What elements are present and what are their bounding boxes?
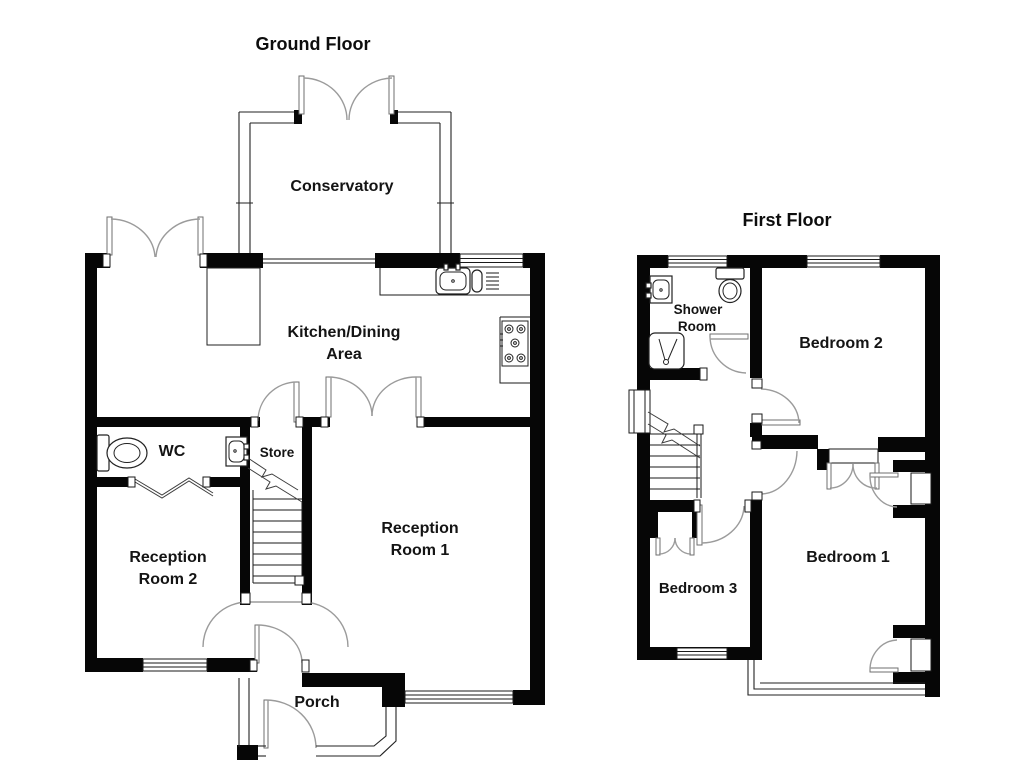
wall-recess-stub — [893, 460, 925, 472]
door-shower-room — [710, 334, 748, 373]
staircase-ground — [248, 458, 304, 585]
porch-glazing — [239, 678, 396, 756]
wall-bedroom2-bedroom1 — [878, 437, 925, 452]
folding-door-reception2 — [135, 478, 213, 498]
opening-conservatory-sill — [263, 259, 375, 263]
stair-break-line — [248, 458, 298, 490]
room-label-shower-line2: Room — [678, 319, 716, 334]
porch-glass — [316, 707, 396, 756]
wall-shower-landing — [637, 368, 707, 380]
window-reception1 — [405, 691, 513, 703]
door-bedroom3 — [697, 505, 744, 545]
room-label-shower-line1: Shower — [674, 302, 724, 317]
ground-floor-windows — [143, 254, 523, 703]
window-kitchen — [460, 254, 523, 267]
french-door-leaf — [389, 76, 394, 114]
wall-bottom-reception2 — [97, 658, 143, 672]
window-shower-room — [668, 256, 727, 267]
wall-left — [85, 253, 97, 672]
room-label-conservatory: Conservatory — [290, 178, 393, 195]
wall-reception2-hall — [240, 487, 250, 605]
wall-bedroom3-bedroom1 — [750, 500, 762, 660]
room-label-kitchen-line1: Kitchen/Dining — [288, 324, 401, 341]
closet-doors-bedroom3 — [656, 538, 694, 555]
conservatory-structure — [236, 76, 454, 253]
room-label-reception2-line2: Room 2 — [139, 571, 198, 588]
closet-cavity — [829, 449, 878, 463]
wall-porch-corner — [382, 673, 405, 707]
staircase-first — [648, 412, 703, 498]
french-door-leaf — [299, 76, 304, 114]
wardrobe-door-top — [870, 473, 898, 507]
newel-post — [694, 425, 703, 434]
shower-basin-icon — [646, 276, 672, 303]
room-label-reception1-line1: Reception — [381, 520, 458, 537]
window-bedroom2 — [807, 256, 880, 267]
room-label-wc: WC — [159, 443, 186, 460]
kitchen-unit-icon — [207, 268, 260, 345]
window-landing — [629, 390, 650, 433]
wall-right — [530, 253, 545, 705]
room-label-bedroom2: Bedroom 2 — [799, 335, 883, 352]
shower-tray-icon — [649, 333, 684, 369]
wall-landing-bedroom2 — [750, 423, 762, 437]
wall-recess-stub — [893, 505, 925, 518]
wall-bottom-hall — [302, 673, 388, 687]
wall-porch-corner — [237, 745, 258, 760]
porch-glass — [316, 707, 386, 746]
drainer-icon — [486, 273, 499, 289]
wardrobe-recess — [911, 639, 931, 671]
french-doors-kitchen — [107, 217, 203, 257]
archway-hall — [203, 602, 348, 647]
door-swing-arc — [304, 78, 347, 120]
wall-kitchen-reception1 — [418, 417, 530, 427]
room-label-kitchen-line2: Area — [326, 346, 362, 363]
wall-left — [637, 433, 650, 660]
room-label-reception1-line2: Room 1 — [391, 542, 450, 559]
room-label-store: Store — [260, 445, 295, 460]
window-reception2 — [143, 659, 207, 671]
wall-top — [727, 255, 807, 268]
room-label-reception2-line1: Reception — [129, 549, 206, 566]
first-floor-jambs — [694, 368, 762, 512]
ground-floor-jambs — [103, 254, 424, 672]
ground-floor-plan: Ground Floor — [85, 34, 545, 760]
wall-recess-stub — [893, 625, 925, 638]
floorplan-drawing: Ground Floor — [0, 0, 1024, 768]
window-bedroom3 — [677, 648, 727, 659]
hob-icon — [500, 321, 528, 366]
ground-floor-fixtures — [97, 264, 530, 471]
kitchen-sink-icon — [436, 264, 482, 294]
door-hall-porch — [255, 625, 302, 663]
first-floor-plan: First Floor — [629, 210, 940, 697]
door-bedroom2 — [761, 389, 800, 425]
room-label-bedroom3: Bedroom 3 — [659, 580, 737, 597]
wc-basin-icon — [226, 437, 249, 466]
stair-break-line — [248, 468, 302, 502]
wall-bottom-reception1 — [513, 690, 545, 705]
floorplan-page: Ground Floor — [0, 0, 1024, 768]
wall-landing-bedroom3 — [637, 500, 700, 512]
door-bedroom1 — [762, 451, 797, 494]
wall-kitchen-wc — [97, 417, 250, 427]
toilet-icon — [716, 268, 744, 303]
double-doors-reception1 — [326, 377, 421, 417]
wall-top — [200, 253, 263, 268]
wardrobe-recess — [911, 473, 931, 504]
wall-shower-bedroom2 — [750, 268, 762, 378]
room-label-bedroom1: Bedroom 1 — [806, 549, 890, 566]
toilet-icon — [97, 435, 147, 471]
first-floor-title: First Floor — [743, 210, 832, 230]
newel-post — [295, 576, 304, 585]
wardrobe-door-bottom — [870, 640, 898, 672]
ground-floor-title: Ground Floor — [256, 34, 371, 54]
wall-landing-bedroom1 — [752, 435, 818, 449]
door-store — [258, 382, 299, 422]
wall-recess-stub — [893, 672, 925, 684]
door-swing-arc — [349, 78, 392, 120]
room-label-porch: Porch — [294, 694, 339, 711]
wall-closet-stub — [650, 512, 658, 538]
